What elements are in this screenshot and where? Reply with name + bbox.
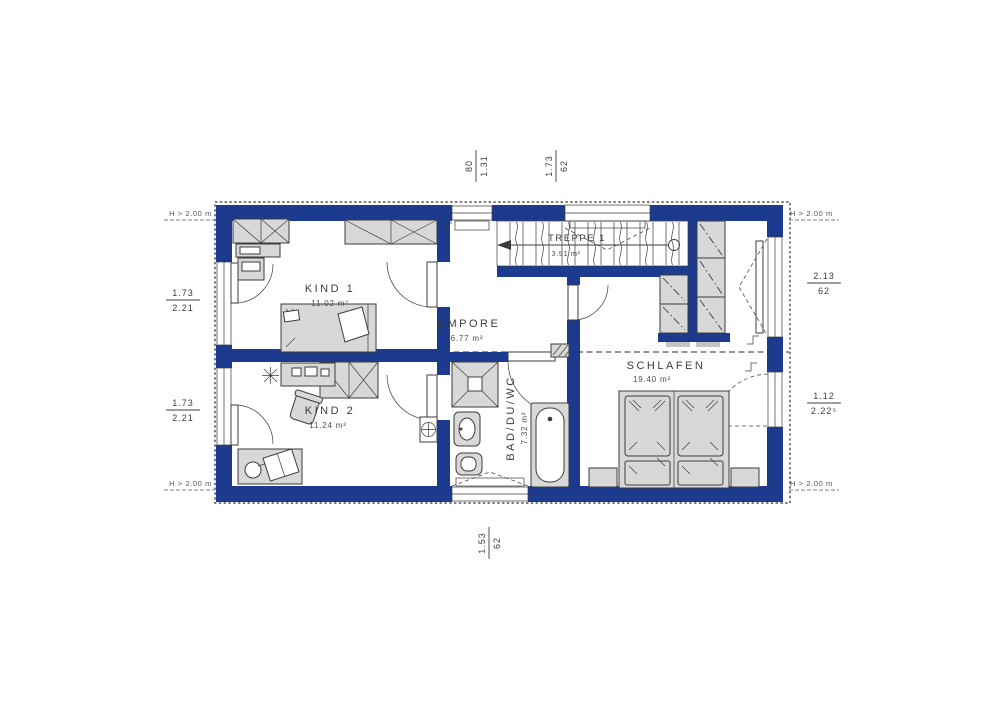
toilet-icon	[456, 453, 482, 475]
room-area-treppe: 3.91 m²	[552, 249, 581, 258]
shower-icon	[452, 362, 498, 407]
room-area-kind2: 11.24 m²	[309, 421, 346, 430]
floorplan-drawing: KIND 1 11.02 m² KIND 2 11.24 m² EMPORE 6…	[0, 0, 1000, 707]
height-note-bottom-left: H > 2.00 m	[169, 479, 212, 488]
closet-plinth	[666, 342, 690, 347]
svg-text:1.31: 1.31	[479, 155, 489, 177]
svg-text:1.73: 1.73	[172, 398, 194, 408]
room-label-schlafen: SCHLAFEN	[627, 360, 706, 372]
washbasin-icon	[454, 412, 480, 446]
svg-text:80: 80	[464, 160, 474, 172]
svg-text:1.12: 1.12	[813, 391, 835, 401]
height-note-top-left: H > 2.00 m	[169, 209, 212, 218]
svg-text:2.21: 2.21	[172, 413, 194, 423]
nightstand-icon	[589, 468, 617, 487]
desk-icon	[281, 363, 335, 386]
plant-icon	[262, 367, 279, 384]
room-area-bad: 7.32 m²	[520, 412, 529, 445]
room-label-bad: BAD/DU/WC	[505, 375, 517, 460]
svg-text:1.53: 1.53	[477, 532, 487, 554]
table-chair-icon	[238, 449, 302, 484]
svg-text:2.13: 2.13	[813, 271, 835, 281]
floorplan-canvas: KIND 1 11.02 m² KIND 2 11.24 m² EMPORE 6…	[0, 0, 1000, 707]
room-label-kind2: KIND 2	[305, 405, 355, 417]
height-note-bottom-right: H > 2.00 m	[790, 479, 833, 488]
room-label-treppe: TREPPE 1	[548, 233, 606, 244]
height-note-top-right: H > 2.00 m	[790, 209, 833, 218]
nightstand-icon	[731, 468, 759, 487]
bathtub-icon	[531, 403, 569, 487]
bed-single-icon	[281, 304, 376, 352]
radiator-icon	[420, 417, 437, 442]
closet-plinth	[696, 342, 720, 347]
svg-text:2.21: 2.21	[172, 303, 194, 313]
svg-text:1.73: 1.73	[172, 288, 194, 298]
room-label-empore: EMPORE	[438, 318, 501, 330]
room-area-empore: 6.77 m²	[451, 334, 484, 343]
bed-double-icon	[619, 391, 729, 488]
room-area-schlafen: 19.40 m²	[633, 375, 671, 384]
svg-text:62: 62	[818, 286, 830, 296]
room-label-kind1: KIND 1	[305, 283, 355, 295]
svg-text:62: 62	[492, 537, 502, 549]
svg-text:1.73: 1.73	[544, 155, 554, 177]
room-area-kind1: 11.02 m²	[311, 299, 348, 308]
shaft	[551, 344, 569, 357]
svg-text:62: 62	[559, 160, 569, 172]
svg-text:2.22⁵: 2.22⁵	[811, 406, 837, 416]
